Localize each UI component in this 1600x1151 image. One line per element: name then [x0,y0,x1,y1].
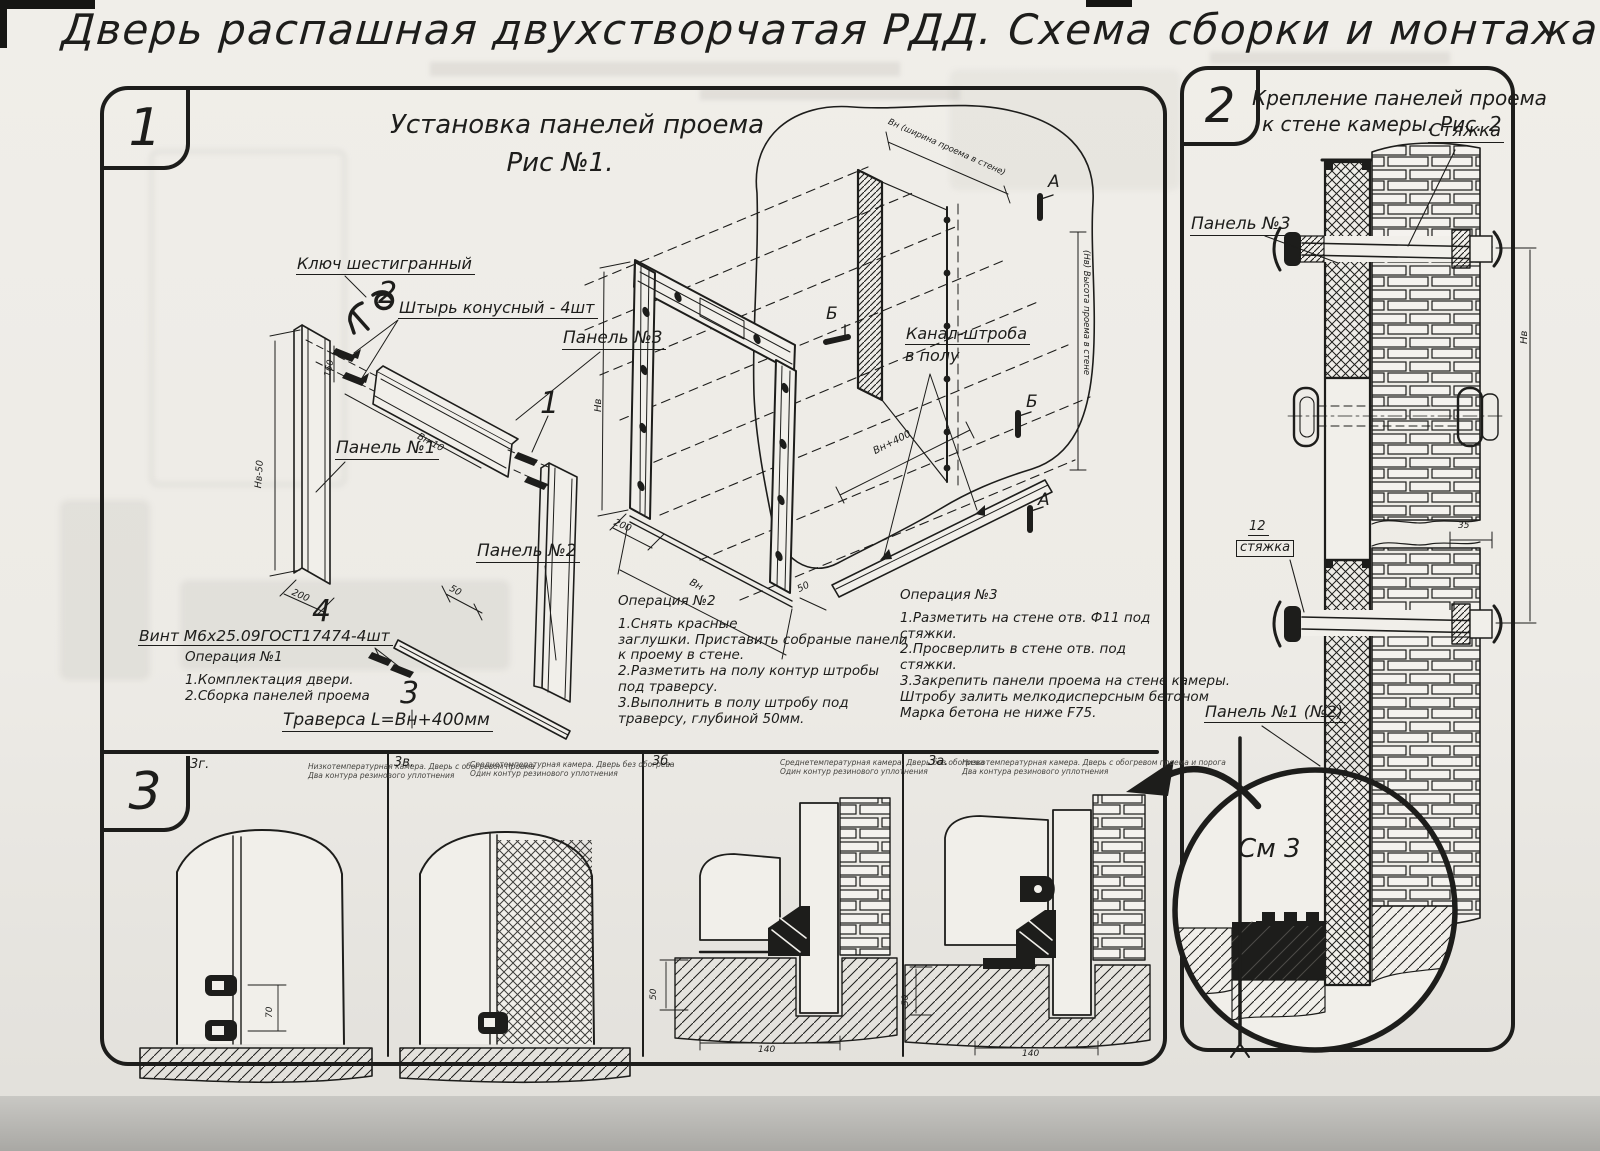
section1-badge: 1 [104,90,190,170]
callout-2: 2 [378,278,397,310]
operation-1-line: 1.Комплектация двери. [185,673,370,689]
panel12-label: Панель №1 (№2) [1204,704,1346,723]
dim-nv50: Нв-50 [254,460,266,489]
section-marker-b-right: Б [1026,394,1038,412]
callout-3: 3 [400,678,419,710]
operation-2-line: к проему в стене. [618,648,908,664]
floor-channel-label-2: в полу [905,348,959,365]
section-marker-a-bottom: А [1038,492,1050,510]
drawing-title: Дверь распашная двухстворчатая РДД. Схем… [60,8,1600,52]
tie12-word: стяжка [1236,540,1294,557]
operation-3-line: стяжки. [900,658,1230,674]
operation-2-line: траверсу, глубиной 50мм. [618,712,908,728]
pin-label: Штырь конусный - 4шт [398,300,598,319]
subpanel-3v-code: 3в. [394,756,414,770]
dim-140-3a: 140 [1022,1050,1039,1059]
panel3-label: Панель №3 [562,330,666,350]
operation-3-line: 1.Разметить на стене отв. Ф11 под [900,611,1230,627]
table-background [0,1096,1600,1151]
section3-badge: 3 [104,756,190,832]
traverse-label: Траверса L=Вн+400мм [282,712,493,732]
section-marker-b-left: Б [826,306,838,324]
callout-1: 1 [540,388,559,420]
dim-opening-height: (Нв) Высота проема в стене [1081,250,1090,375]
section2-badge: 2 [1184,70,1260,146]
subpanel-3a-desc: Низкотемпературная камера. Дверь с обогр… [962,758,1226,776]
subpanel-3b-desc: Среднетемпературная камера. Дверь без об… [780,758,985,776]
panel2-label: Панель №2 [476,543,580,563]
subpanel-3b-code: 3б. [652,755,672,769]
operation-3-title: Операция №3 [900,588,1230,604]
hex-key-label: Ключ шестигранный [296,256,475,275]
operation-2: Операция №2 1.Снять красные заглушки. Пр… [618,594,908,727]
operation-1-title: Операция №1 [185,650,370,666]
dim-70-3g: 70 [266,1007,275,1018]
dim-50-3b: 50 [650,989,659,1000]
operation-1: Операция №1 1.Комплектация двери. 2.Сбор… [185,650,370,704]
subpanel-3a-desc-line: Два контура резинового уплотнения [962,767,1226,776]
operation-3-line: 2.Просверлить в стене отв. под [900,642,1230,658]
section1-frame [100,86,1167,1066]
fig1-title: Установка панелей проема [390,112,730,139]
tie-label: Стяжка [1428,122,1504,143]
tie12-number: 12 [1248,520,1269,536]
floor-channel-label-1: Канал-штроба [905,326,1030,345]
panel3-label-s2: Панель №3 [1190,216,1294,236]
operation-2-line: 1.Снять красные [618,617,908,633]
subpanel-3b-desc-line: Один контур резинового уплотнения [780,767,985,776]
operation-3-line: Марка бетона не ниже F75. [900,706,1230,722]
scan-artifact [0,0,95,9]
subpanel-3a-desc-line: Низкотемпературная камера. Дверь с обогр… [962,758,1226,767]
subpanel-3b-desc-line: Среднетемпературная камера. Дверь без об… [780,758,985,767]
operation-1-line: 2.Сборка панелей проема [185,689,370,705]
screw-label: Винт М6х25.09ГОСТ17474-4шт [138,628,393,646]
operation-2-title: Операция №2 [618,594,908,610]
see-detail-3-label: См 3 [1238,836,1301,863]
operation-2-line: 3.Выполнить в полу штробу под [618,696,908,712]
dim-140-3b: 140 [758,1046,775,1055]
dim-35-s2: 35 [1458,522,1469,531]
dim-nv-s2: Нв [1520,331,1531,344]
operation-2-line: под траверсу. [618,680,908,696]
operation-3-line: стяжки. [900,627,1230,643]
operation-2-line: заглушки. Приставить собраные панели [618,633,908,649]
callout-4: 4 [312,596,331,628]
subpanel-3v-desc-line: Один контур резинового уплотнения [470,769,675,778]
operation-2-line: 2.Разметить на полу контур штробы [618,664,908,680]
dim-50-3a: 50 [902,995,911,1006]
dim-nv-center: Нв [594,399,605,412]
operation-3: Операция №3 1.Разметить на стене отв. Ф1… [900,588,1230,721]
scan-artifact [0,0,7,48]
subpanel-3v-desc-line: Среднетемпературная камера. Дверь без об… [470,760,675,769]
bleed-ghost [430,62,900,76]
operation-3-line: Штробу залить мелкодисперсным бетоном [900,690,1230,706]
subpanel-3g-code: 3г. [190,758,209,772]
subpanel-3a-code: 3а. [928,755,948,769]
subpanel-3v-desc: Среднетемпературная камера. Дверь без об… [470,760,675,778]
scanned-assembly-drawing: { "title": "Дверь распашная двухстворчат… [0,0,1600,1151]
fig1-subtitle: Рис №1. [390,150,730,177]
operation-3-line: 3.Закрепить панели проема на стене камер… [900,674,1230,690]
fig2-title-1: Крепление панелей проема [1252,88,1547,109]
scan-artifact [1086,0,1132,7]
section-marker-a-top: А [1048,174,1060,192]
